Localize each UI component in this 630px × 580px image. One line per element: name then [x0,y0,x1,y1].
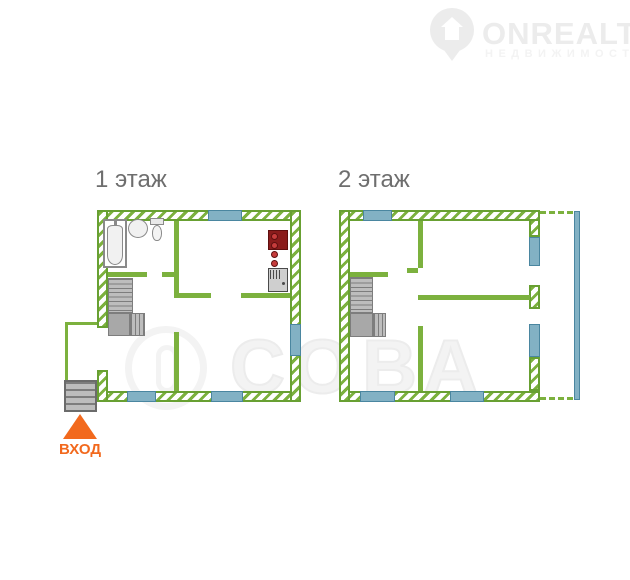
window [290,324,301,356]
bathtub-tap [114,221,117,225]
balcony-edge [540,211,577,214]
stove-icon [268,230,288,250]
burner [271,242,278,249]
interior-wall [108,272,147,277]
window [211,391,243,402]
wall-segment [529,219,540,237]
wall-segment [529,285,540,309]
balcony-glazing [574,211,580,400]
floor-2-label: 2 этаж [338,166,410,194]
interior-wall [179,293,211,298]
burner [271,233,278,240]
bathtub-basin [107,225,123,265]
interior-wall [407,268,418,273]
floorplan-image: ONREALT НЕДВИЖИМОСТЬ СОВА 1 этаж 2 этаж [0,0,630,580]
interior-wall [418,295,530,300]
porch-wall [65,322,97,325]
house-roof [441,17,463,27]
pin-tail [441,46,463,61]
window [529,237,540,266]
interior-wall [174,221,179,298]
balcony-edge [540,397,577,400]
floor-2-plan [339,210,580,402]
toilet-bowl-icon [152,225,162,241]
wall-segment [529,357,540,391]
window [127,391,156,402]
washbasin-icon [128,219,148,238]
window [208,210,242,221]
window [450,391,484,402]
burner [271,260,278,267]
window [363,210,392,221]
bathtub-icon [103,219,127,268]
staircase-treads [350,277,373,313]
staircase-winder [373,313,386,337]
staircase-treads [108,278,133,313]
entrance-label: ВХОД [55,441,105,458]
house-pin-icon [430,8,476,68]
staircase-winder [130,313,145,336]
wall-segment [339,210,350,402]
window [360,391,395,402]
wall-segment [290,210,301,402]
staircase-landing [350,313,373,337]
kitchen-sink-icon [268,268,288,292]
entrance-steps [64,380,97,412]
interior-wall [241,293,290,298]
wall-segment [97,370,108,402]
house-body [445,27,459,40]
burner [271,251,278,258]
floor-1-plan [97,210,301,402]
toilet-tank-icon [150,218,164,225]
interior-wall [418,221,423,268]
window [529,324,540,357]
brand-name: ONREALT [482,16,630,52]
staircase-landing [108,313,130,336]
entrance-arrow-icon [63,414,97,439]
interior-wall [174,332,179,391]
wall-segment [97,210,301,221]
onrealt-watermark: ONREALT НЕДВИЖИМОСТЬ [430,8,620,60]
interior-wall [418,326,423,391]
brand-subtitle: НЕДВИЖИМОСТЬ [485,48,630,60]
floor-1-label: 1 этаж [95,166,167,194]
sink-drain [282,282,285,285]
porch-wall [65,322,68,381]
sink-drainboard [270,270,281,279]
